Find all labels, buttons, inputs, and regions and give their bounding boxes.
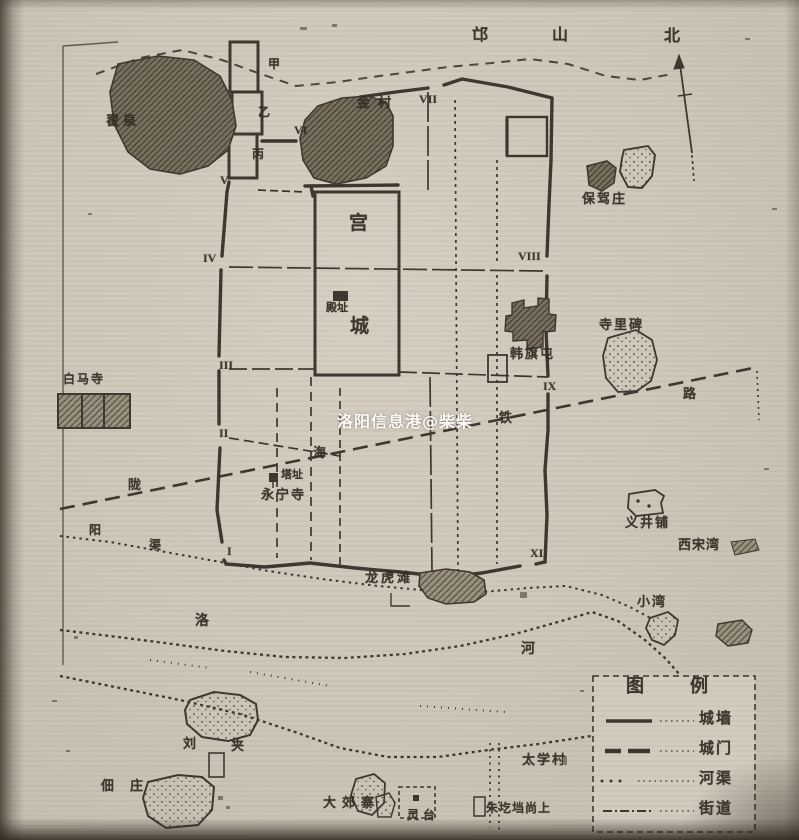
label-jincun: 金村	[357, 97, 399, 110]
watermark-text: 洛阳信息港@柴柴	[337, 408, 473, 432]
silibei-site	[603, 330, 657, 392]
small-enclosure	[507, 117, 547, 156]
gate-label-8: VIII	[518, 250, 541, 262]
label-liu: 刘	[183, 738, 196, 751]
label-baimasi: 白马寺	[63, 373, 105, 385]
label-taixuecun: 太学村	[522, 754, 567, 767]
label-dajiaozhai: 大郊寨	[323, 797, 380, 810]
gate-label-5: V	[220, 174, 229, 186]
label-longhutan: 龙虎滩	[365, 572, 413, 585]
mountain-label-mang: 邙	[472, 27, 488, 43]
liujia-village	[185, 692, 258, 777]
label-hanqitun: 韩旗屯	[510, 348, 555, 361]
baojiazhuang-village	[587, 146, 655, 191]
gate-label-3: III	[219, 359, 233, 371]
enclosure-label-yi: 乙	[258, 106, 270, 118]
label-dianzhuang: 佃庄	[101, 780, 159, 793]
enclosure-label-jia: 甲	[268, 58, 280, 70]
railway-char-hai: 海	[313, 447, 326, 460]
railway-line	[60, 367, 759, 509]
gate-label-6: VI	[294, 124, 307, 136]
legend-label-gate: 城门	[699, 741, 733, 756]
label-yijingpu: 义井铺	[625, 517, 670, 530]
xisongwan-mark	[731, 539, 759, 555]
label-zhugedang: 朱圪垱尚上	[486, 802, 551, 814]
legend-label-river: 河渠	[699, 771, 733, 786]
label-xiaowan: 小湾	[637, 596, 667, 609]
mountain-label-shan: 山	[552, 27, 568, 43]
zhugedang-site	[474, 797, 485, 816]
label-zhaiquan: 翟泉	[106, 115, 140, 128]
railway-char-tie: 铁	[499, 412, 512, 425]
gate-label-11: XI	[530, 547, 543, 559]
xiaowan-village	[646, 612, 752, 646]
label-palace-cheng: 城	[350, 317, 369, 336]
north-arrow	[674, 55, 694, 181]
label-jia: 夹	[231, 740, 244, 753]
label-lingtai: 灵台	[407, 809, 439, 821]
scanned-map-page: 邙 山 北 甲 乙 丙 I II III IV V VI VII VIII IX…	[0, 0, 799, 840]
label-baojiazhuang: 保驾庄	[582, 193, 627, 206]
legend-title: 图例	[626, 678, 754, 696]
gate-label-7: VII	[419, 93, 437, 105]
railway-char-long: 陇	[128, 479, 141, 492]
label-silibei: 寺里碑	[599, 319, 644, 332]
gate-label-9: IX	[543, 380, 556, 392]
canal-char-qu: 渠	[149, 539, 161, 551]
gate-label-4: IV	[203, 252, 216, 264]
map-neatline	[63, 42, 118, 665]
gate-label-1: I	[227, 545, 232, 557]
river-char-luo: 洛	[195, 614, 209, 628]
enclosure-label-bing: 丙	[252, 148, 264, 160]
railway-char-lu: 路	[683, 388, 696, 401]
canal-char-yang: 阳	[89, 524, 101, 536]
baimasi-temple	[58, 394, 130, 428]
luo-river	[60, 612, 680, 757]
legend-label-wall: 城墙	[699, 711, 733, 726]
gate-label-2: II	[219, 427, 228, 439]
yijingpu-site	[628, 490, 664, 516]
city-streets	[229, 92, 547, 830]
north-label: 北	[664, 28, 680, 44]
label-palace-gong: 宫	[349, 214, 368, 233]
legend-label-street: 街道	[699, 801, 733, 816]
label-xisongwan: 西宋湾	[678, 539, 720, 552]
label-tazhi: 塔址	[281, 469, 303, 480]
river-char-he: 河	[521, 642, 535, 656]
hall-site-mark	[333, 291, 348, 301]
label-hall-site: 殿址	[326, 302, 348, 313]
label-yongningsi: 永宁寺	[261, 489, 306, 502]
